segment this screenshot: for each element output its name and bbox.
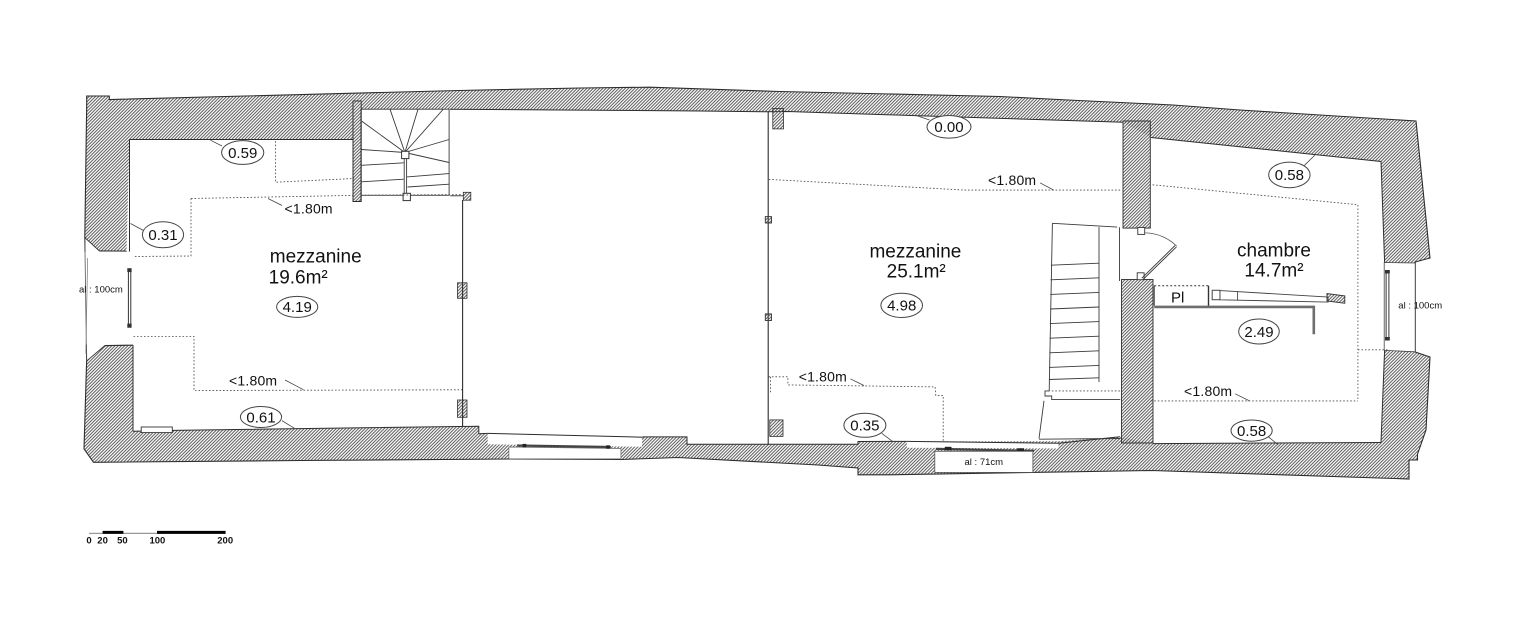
svg-text:chambre: chambre [1237, 241, 1311, 262]
svg-text:0.59: 0.59 [228, 145, 257, 162]
svg-text:al : 100cm: al : 100cm [79, 285, 123, 296]
svg-text:<1.80m: <1.80m [988, 172, 1036, 188]
svg-text:19.6m²: 19.6m² [269, 268, 328, 289]
svg-text:4.19: 4.19 [283, 299, 312, 316]
svg-text:mezzanine: mezzanine [270, 247, 362, 268]
svg-text:0.61: 0.61 [246, 409, 275, 426]
svg-text:0.35: 0.35 [850, 418, 879, 435]
svg-text:al : 71cm: al : 71cm [965, 457, 1004, 468]
svg-text:2.49: 2.49 [1244, 324, 1273, 341]
svg-text:<1.80m: <1.80m [799, 369, 847, 385]
svg-text:25.1m²: 25.1m² [887, 262, 946, 283]
svg-text:4.98: 4.98 [887, 298, 916, 315]
svg-text:0: 0 [86, 536, 91, 547]
svg-text:0.31: 0.31 [148, 227, 177, 244]
svg-text:al : 100cm: al : 100cm [1398, 301, 1442, 312]
svg-text:100: 100 [149, 536, 165, 547]
svg-text:200: 200 [217, 536, 233, 547]
svg-text:mezzanine: mezzanine [869, 242, 961, 263]
svg-text:<1.80m: <1.80m [229, 373, 277, 389]
svg-text:14.7m²: 14.7m² [1244, 261, 1303, 282]
svg-text:0.58: 0.58 [1275, 167, 1304, 184]
svg-text:Pl: Pl [1171, 290, 1184, 307]
svg-text:0.00: 0.00 [934, 119, 963, 136]
svg-text:<1.80m: <1.80m [1184, 383, 1232, 399]
svg-text:<1.80m: <1.80m [285, 201, 333, 217]
svg-text:50: 50 [117, 536, 128, 547]
svg-text:0.58: 0.58 [1237, 423, 1266, 440]
svg-text:20: 20 [97, 536, 108, 547]
